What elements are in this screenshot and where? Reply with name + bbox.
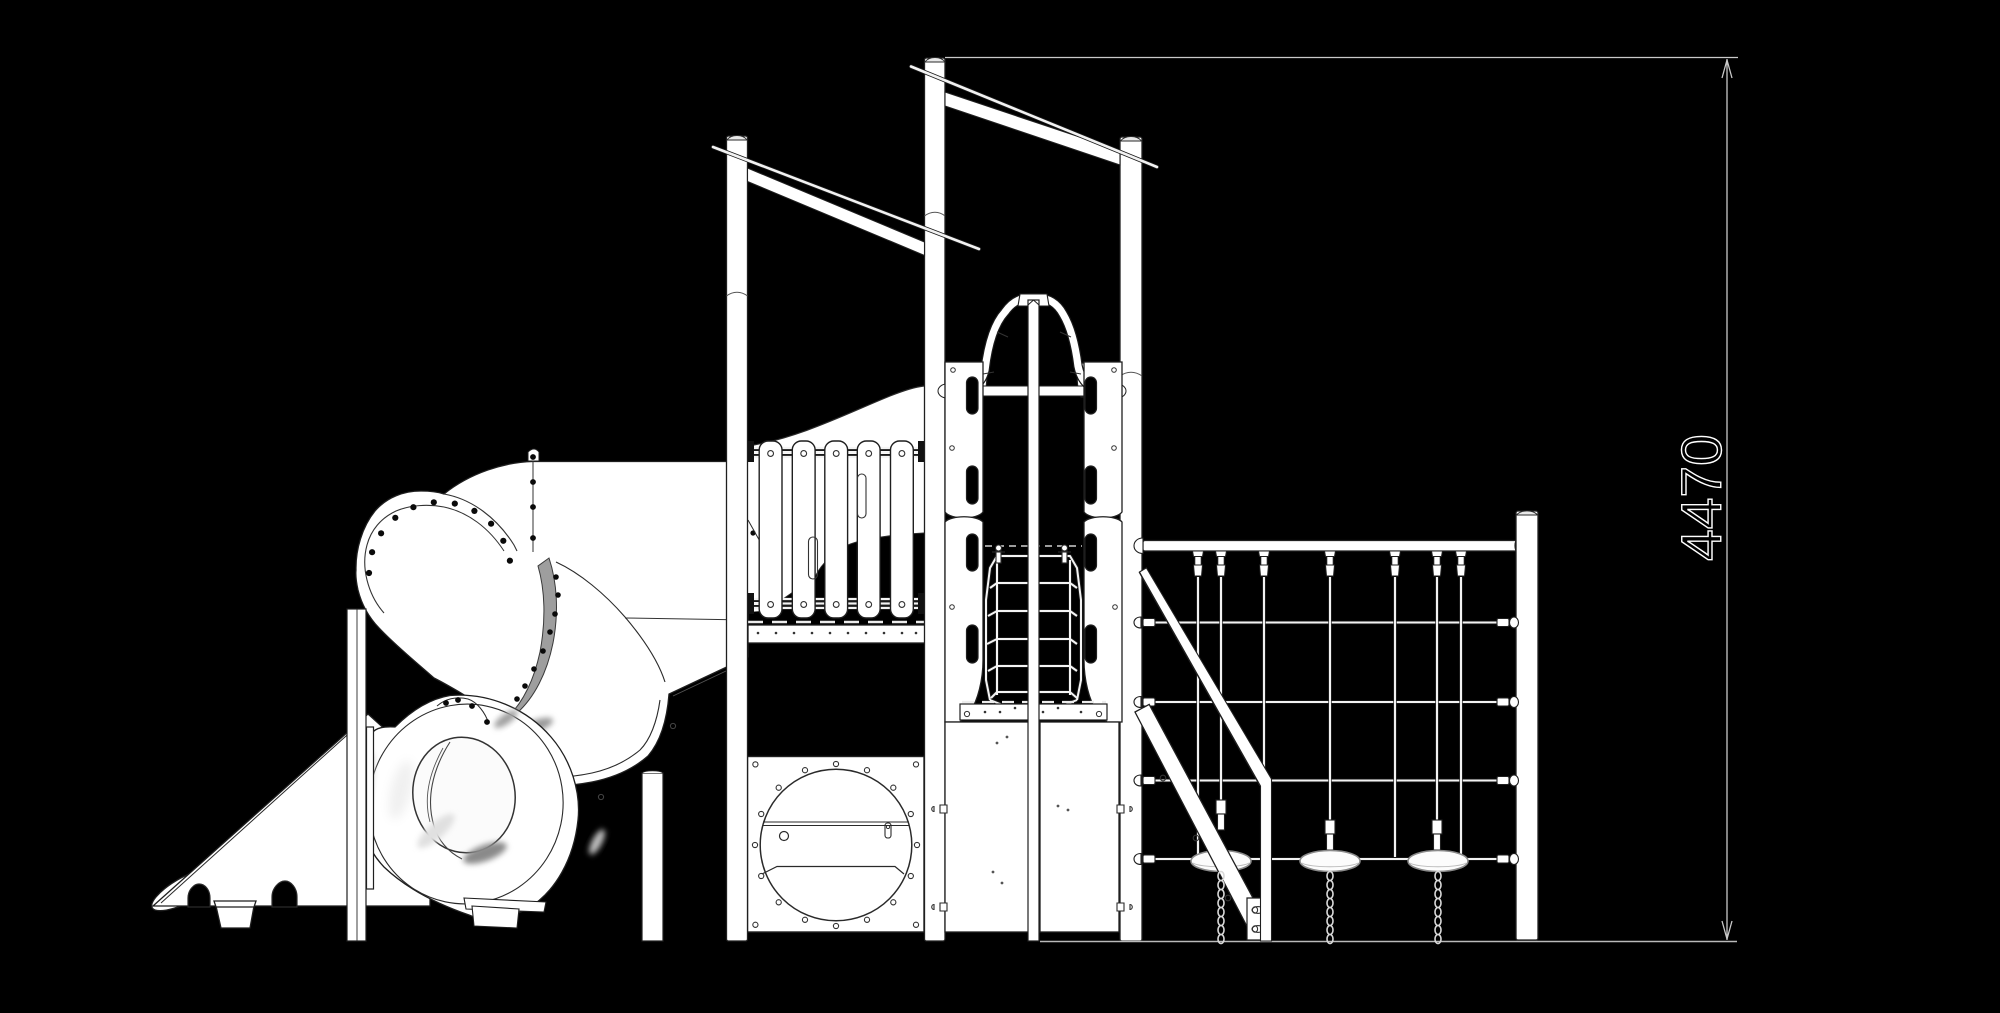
svg-text:4470: 4470 <box>1670 434 1734 561</box>
